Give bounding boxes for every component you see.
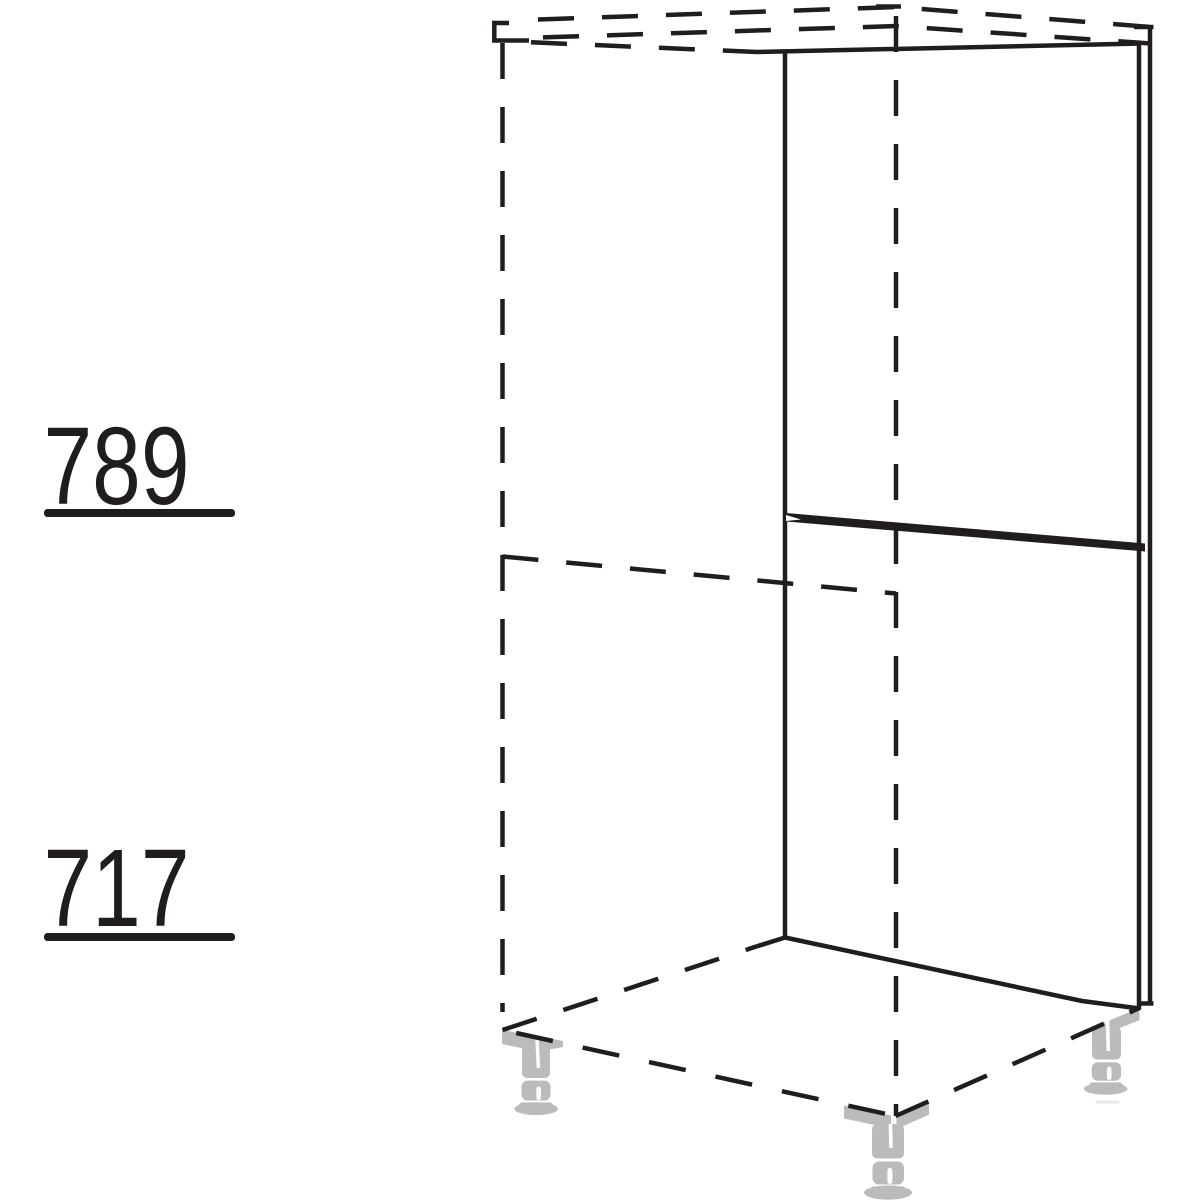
svg-text:717: 717	[44, 827, 190, 950]
